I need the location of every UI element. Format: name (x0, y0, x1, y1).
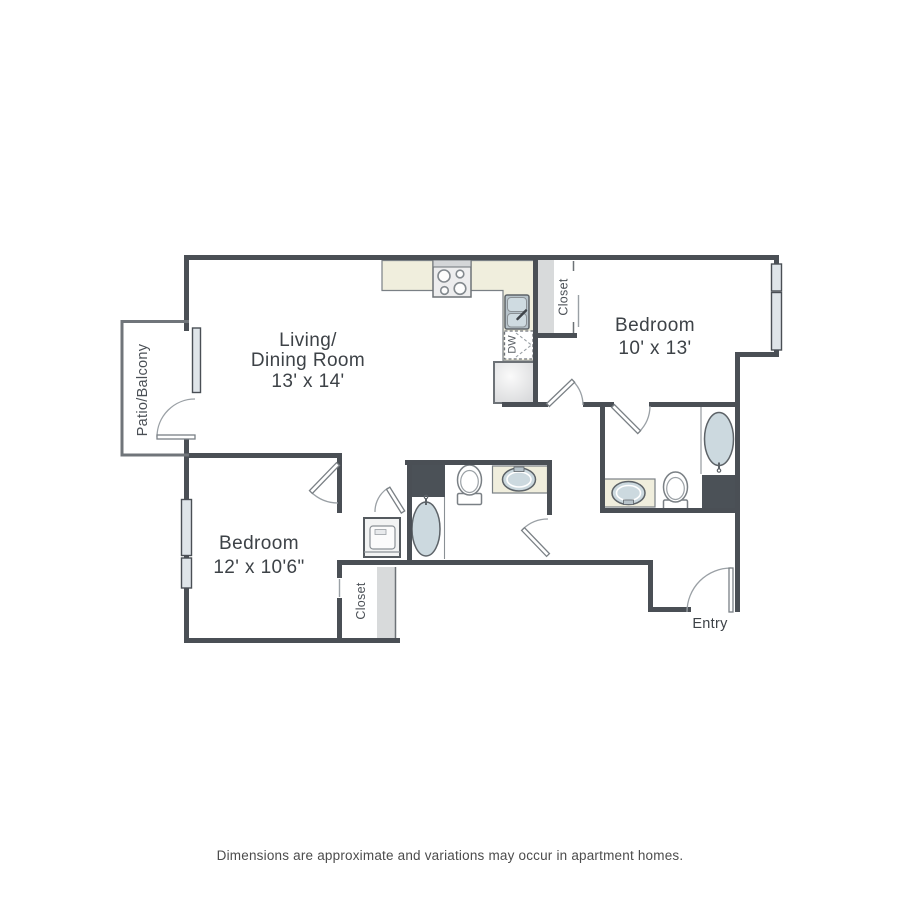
closet-kitchen-label: Closet (556, 278, 570, 315)
closet-bedroom2-label: Closet (354, 582, 368, 619)
vanity-sink-icon (493, 466, 548, 493)
disclaimer-text: Dimensions are approximate and variation… (0, 848, 900, 863)
refrigerator-icon (494, 362, 535, 403)
living-room-dimensions: 13' x 14' (271, 371, 344, 392)
window-icon (182, 558, 192, 588)
bedroom1-label: Bedroom (615, 315, 695, 336)
living-room-label-line2: Dining Room (251, 350, 365, 371)
bedroom2-dimensions: 12' x 10'6" (213, 557, 304, 578)
entry-door-swing-icon (687, 568, 733, 612)
closet-kitchen-opening (574, 261, 579, 333)
dishwasher-label: DW (506, 335, 518, 354)
entry-label: Entry (692, 616, 728, 632)
laundry-door-swing-icon (375, 487, 405, 513)
window-icon (772, 264, 782, 291)
closet-bedroom2-band (377, 567, 396, 638)
bedroom2-label: Bedroom (219, 533, 299, 554)
floorplan-canvas: Living/ Dining Room 13' x 14' Bedroom 10… (0, 0, 900, 900)
interior-walls (184, 255, 779, 643)
vanity-sink-icon (602, 479, 655, 507)
living-room-label-line1: Living/ (279, 330, 337, 351)
closet-kitchen-band (538, 260, 554, 334)
window-icon (772, 293, 782, 351)
bedroom1-bath-door-swing-icon (612, 405, 650, 434)
bath1-builtin-block (702, 475, 736, 509)
patio-door-swing-icon (157, 399, 195, 439)
washer-icon (364, 518, 400, 557)
living-hall-door-swing-icon (547, 379, 583, 406)
kitchen-sink-icon (505, 295, 529, 329)
toilet-icon (458, 465, 482, 505)
window-icon (182, 500, 192, 556)
bath2-door-swing-icon (522, 519, 550, 556)
bath2-builtin-block (407, 464, 445, 497)
closet-bedroom2-opening (337, 578, 343, 598)
stove-icon (433, 260, 471, 297)
bathtub-icon (705, 413, 734, 473)
bathtub-icon (412, 495, 440, 556)
toilet-icon (664, 472, 688, 511)
bedroom2-door-swing-icon (309, 463, 339, 503)
patio-slider-window-icon (193, 328, 201, 393)
floorplan-page: Living/ Dining Room 13' x 14' Bedroom 10… (0, 0, 900, 900)
bedroom1-dimensions: 10' x 13' (618, 338, 691, 359)
patio-balcony-label: Patio/Balcony (135, 343, 151, 436)
